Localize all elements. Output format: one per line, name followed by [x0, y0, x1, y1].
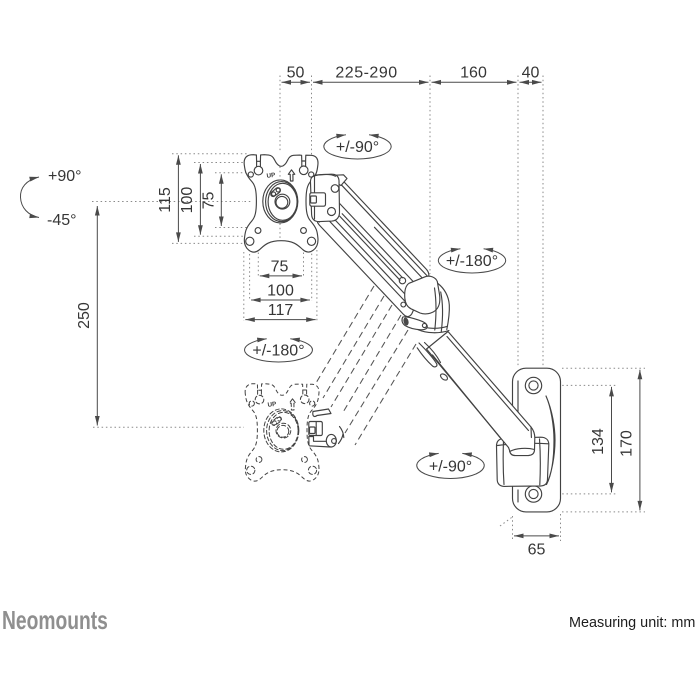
svg-text:65: 65 [528, 542, 546, 559]
svg-text:UP: UP [266, 172, 276, 180]
svg-text:+90°: +90° [48, 168, 82, 185]
svg-text:-45°: -45° [47, 212, 77, 229]
svg-text:115: 115 [157, 187, 174, 213]
svg-text:117: 117 [268, 302, 294, 319]
svg-text:+/-90°: +/-90° [429, 459, 472, 476]
svg-text:75: 75 [271, 258, 289, 275]
svg-text:134: 134 [590, 428, 607, 455]
svg-text:160: 160 [460, 65, 487, 82]
svg-text:+/-180°: +/-180° [252, 343, 304, 360]
svg-text:100: 100 [267, 282, 294, 299]
svg-text:UP: UP [267, 401, 277, 409]
svg-text:40: 40 [522, 65, 540, 82]
svg-text:+/-180°: +/-180° [446, 253, 498, 270]
svg-text:50: 50 [287, 65, 305, 82]
svg-text:170: 170 [619, 430, 636, 457]
svg-text:75: 75 [200, 192, 217, 210]
svg-text:225-290: 225-290 [335, 65, 397, 82]
svg-text:+/-90°: +/-90° [336, 139, 379, 156]
svg-text:100: 100 [179, 187, 196, 214]
svg-text:250: 250 [76, 302, 93, 329]
